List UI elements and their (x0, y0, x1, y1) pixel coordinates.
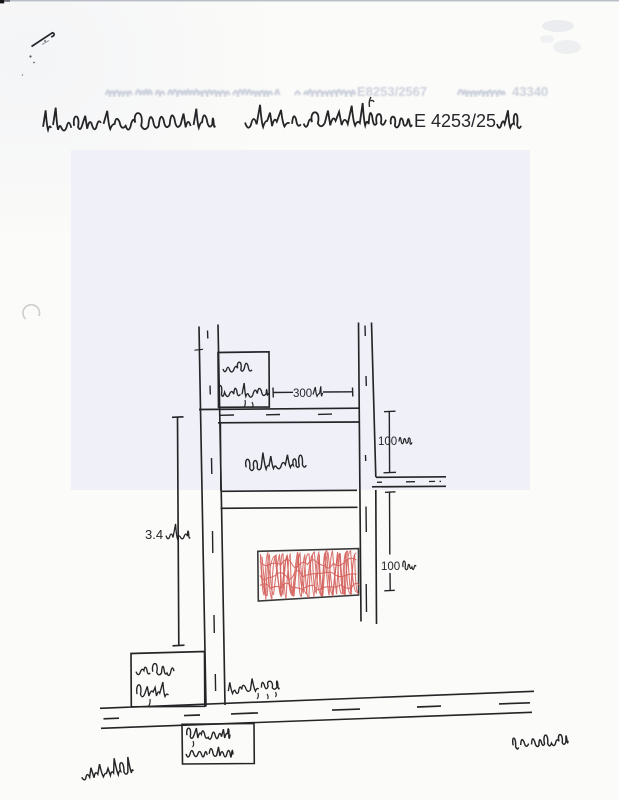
svg-text:43340: 43340 (512, 84, 548, 99)
svg-text:100: 100 (378, 436, 397, 448)
svg-text:3.4: 3.4 (145, 527, 163, 542)
svg-text:300: 300 (293, 388, 312, 400)
svg-text:E 4253/25: E 4253/25 (414, 111, 496, 131)
svg-text:100: 100 (381, 561, 400, 573)
svg-text:E8253/2567: E8253/2567 (357, 84, 427, 99)
